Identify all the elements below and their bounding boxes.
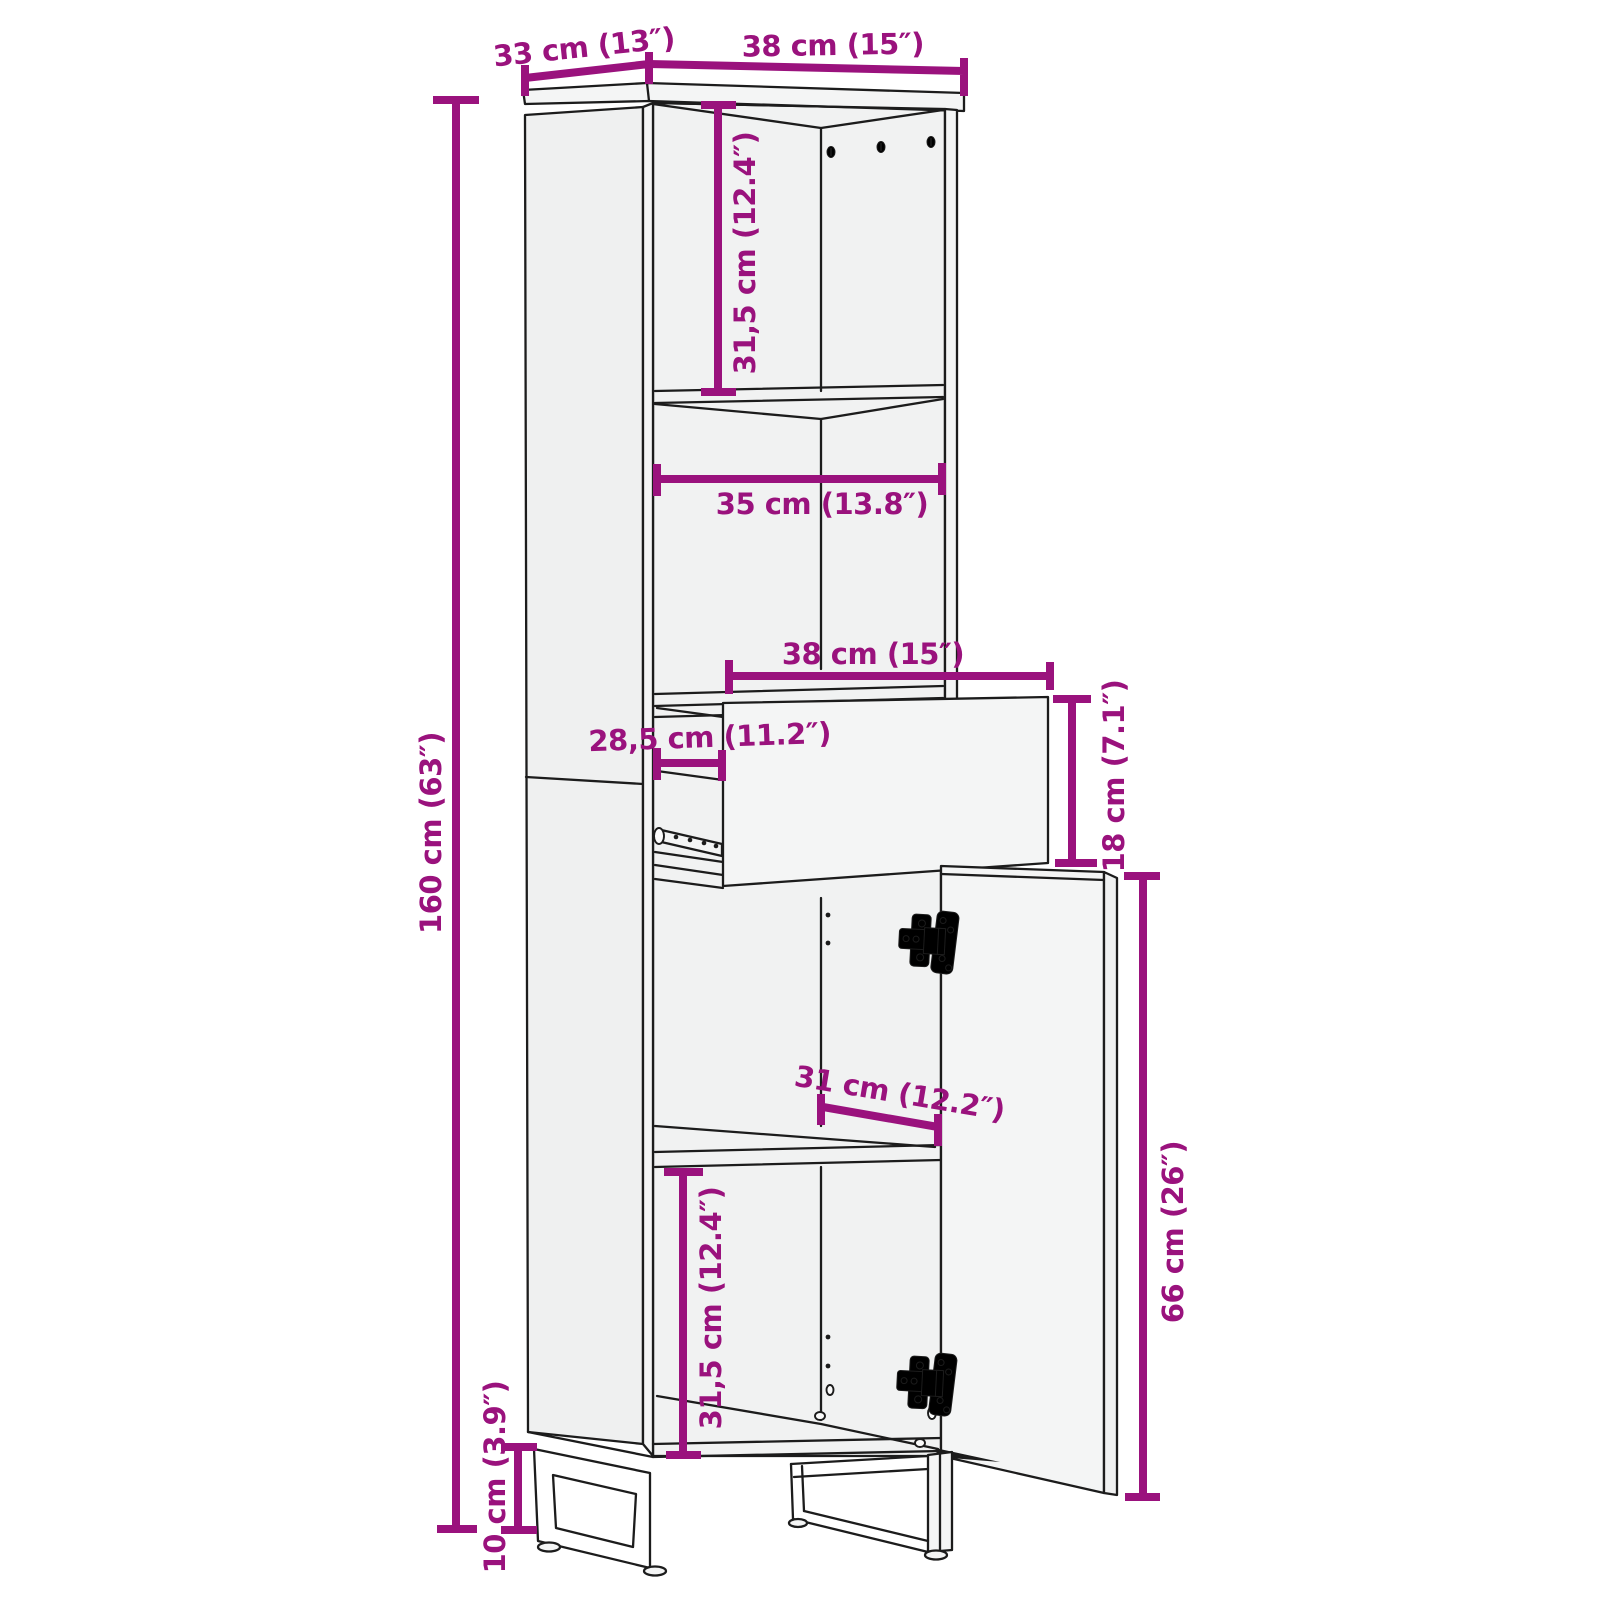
front-left-stile xyxy=(643,103,653,1456)
dim-shelf-width-label: 35 cm (13.8″) xyxy=(716,487,928,521)
screw-icon xyxy=(877,142,885,153)
dim-lower-compartment-height-label: 31,5 cm (12.4″) xyxy=(694,1187,728,1430)
cabinet-dimension-diagram: 33 cm (13″) 38 cm (15″) 31,5 cm (12.4″) … xyxy=(0,0,1600,1600)
leg-foot xyxy=(925,1551,947,1560)
door-panel[interactable] xyxy=(935,866,1117,1495)
dim-drawer-height-label: 18 cm (7.1″) xyxy=(1097,680,1131,873)
diagram-canvas: 33 cm (13″) 38 cm (15″) 31,5 cm (12.4″) … xyxy=(0,0,1600,1600)
leg-foot xyxy=(538,1543,560,1552)
screw-icon xyxy=(827,147,835,158)
dim-upper-compartment-height-label: 31,5 cm (12.4″) xyxy=(728,132,762,375)
dim-leg-height-label: 10 cm (3.9″) xyxy=(478,1381,512,1574)
dim-drawer-width-label: 38 cm (15″) xyxy=(782,637,964,671)
dim-door-height-label: 66 cm (26″) xyxy=(1156,1141,1190,1323)
leg-foot xyxy=(644,1567,666,1576)
left-side-panel xyxy=(525,107,643,1444)
dim-top-width-label: 38 cm (15″) xyxy=(741,26,924,63)
leg-foot xyxy=(789,1519,807,1527)
screw-icon xyxy=(927,137,935,148)
dim-total-height-label: 160 cm (63″) xyxy=(414,732,448,934)
